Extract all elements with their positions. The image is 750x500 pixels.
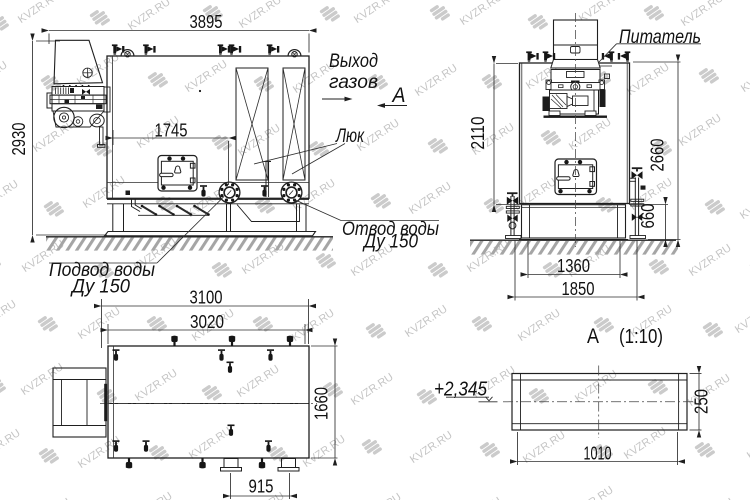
svg-text:1745: 1745 [155, 120, 188, 141]
svg-text:Люк: Люк [334, 126, 364, 147]
svg-text:А: А [391, 84, 406, 107]
svg-text:газов: газов [329, 72, 378, 93]
svg-text:1010: 1010 [584, 443, 612, 464]
svg-text:250: 250 [691, 389, 712, 414]
svg-text:Ду 150: Ду 150 [70, 277, 130, 298]
svg-text:Ду 150: Ду 150 [362, 232, 418, 253]
svg-text:3100: 3100 [190, 287, 223, 308]
svg-text:2660: 2660 [647, 139, 668, 172]
svg-text:2110: 2110 [467, 117, 488, 150]
svg-text:915: 915 [249, 476, 274, 497]
svg-text:(1:10): (1:10) [619, 326, 663, 348]
svg-text:3895: 3895 [190, 11, 223, 32]
svg-text:1660: 1660 [311, 387, 332, 420]
svg-text:1850: 1850 [562, 278, 595, 299]
svg-text:Питатель: Питатель [619, 27, 701, 48]
svg-text:Выход: Выход [329, 51, 378, 72]
svg-text:3020: 3020 [190, 311, 224, 332]
svg-text:660: 660 [637, 204, 658, 229]
svg-text:А: А [587, 325, 599, 348]
svg-text:2930: 2930 [8, 123, 29, 156]
svg-text:1360: 1360 [557, 255, 590, 276]
